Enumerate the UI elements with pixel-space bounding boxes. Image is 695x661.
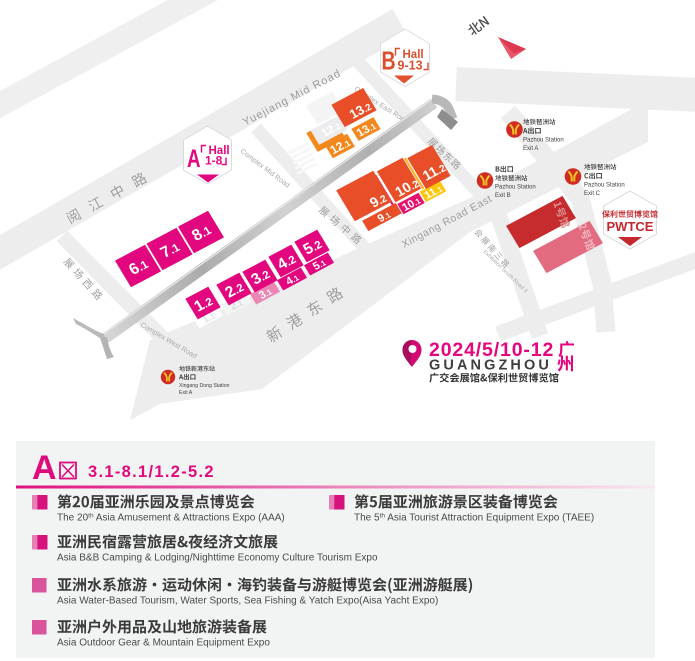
svg-text:Exit C: Exit C [584,191,601,197]
svg-text:A: A [187,144,201,172]
svg-text:GUANGZHOU: GUANGZHOU [429,358,552,374]
svg-text:PWTCE: PWTCE [607,219,654,234]
svg-text:9-13: 9-13 [398,59,423,73]
svg-text:Asia Outdoor Gear & Mountain E: Asia Outdoor Gear & Mountain Equipment E… [57,638,270,649]
svg-text:The 5th Asia Tourist Attractio: The 5th Asia Tourist Attraction Equipmen… [354,513,594,524]
svg-text:Asia B&B Camping & Lodging/Nig: Asia B&B Camping & Lodging/Nighttime Eco… [57,553,378,564]
svg-text:Pazhou Station: Pazhou Station [523,138,564,144]
svg-text:Asia Water-Based Tourism, Wate: Asia Water-Based Tourism, Water Sports, … [57,596,438,607]
svg-text:Exit A: Exit A [179,390,193,396]
svg-text:Pazhou Station: Pazhou Station [495,185,536,191]
svg-text:Exit A: Exit A [523,146,538,152]
svg-text:Xingang Dong Station: Xingang Dong Station [179,383,230,389]
svg-text:B: B [382,46,396,75]
svg-text:1-8: 1-8 [205,154,223,168]
svg-text:3.1-8.1/1.2-5.2: 3.1-8.1/1.2-5.2 [88,463,215,481]
svg-text:Pazhou Station: Pazhou Station [584,183,625,189]
svg-text:Exit B: Exit B [495,193,511,199]
svg-text:A: A [32,449,57,487]
